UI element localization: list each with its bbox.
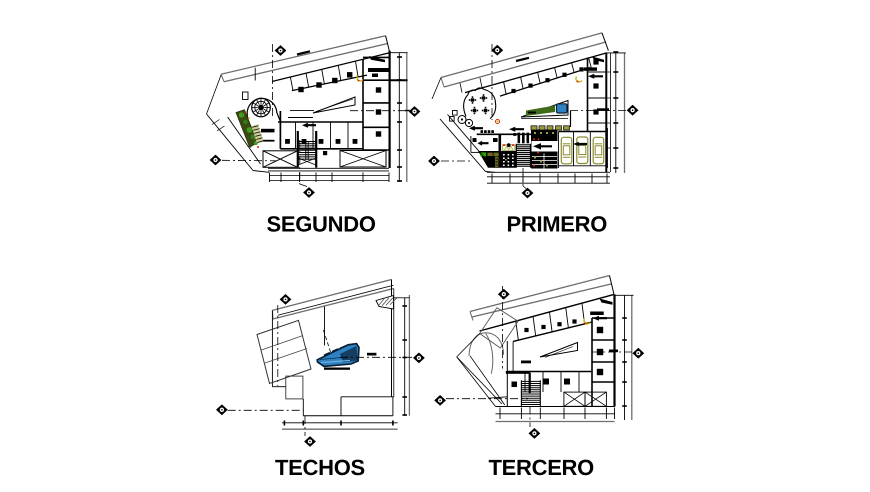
svg-text:SEGUNDO: SEGUNDO [267, 212, 376, 237]
svg-text:TERCERO: TERCERO [489, 455, 595, 480]
svg-text:PRIMERO: PRIMERO [507, 211, 608, 236]
svg-text:TECHOS: TECHOS [275, 455, 365, 480]
